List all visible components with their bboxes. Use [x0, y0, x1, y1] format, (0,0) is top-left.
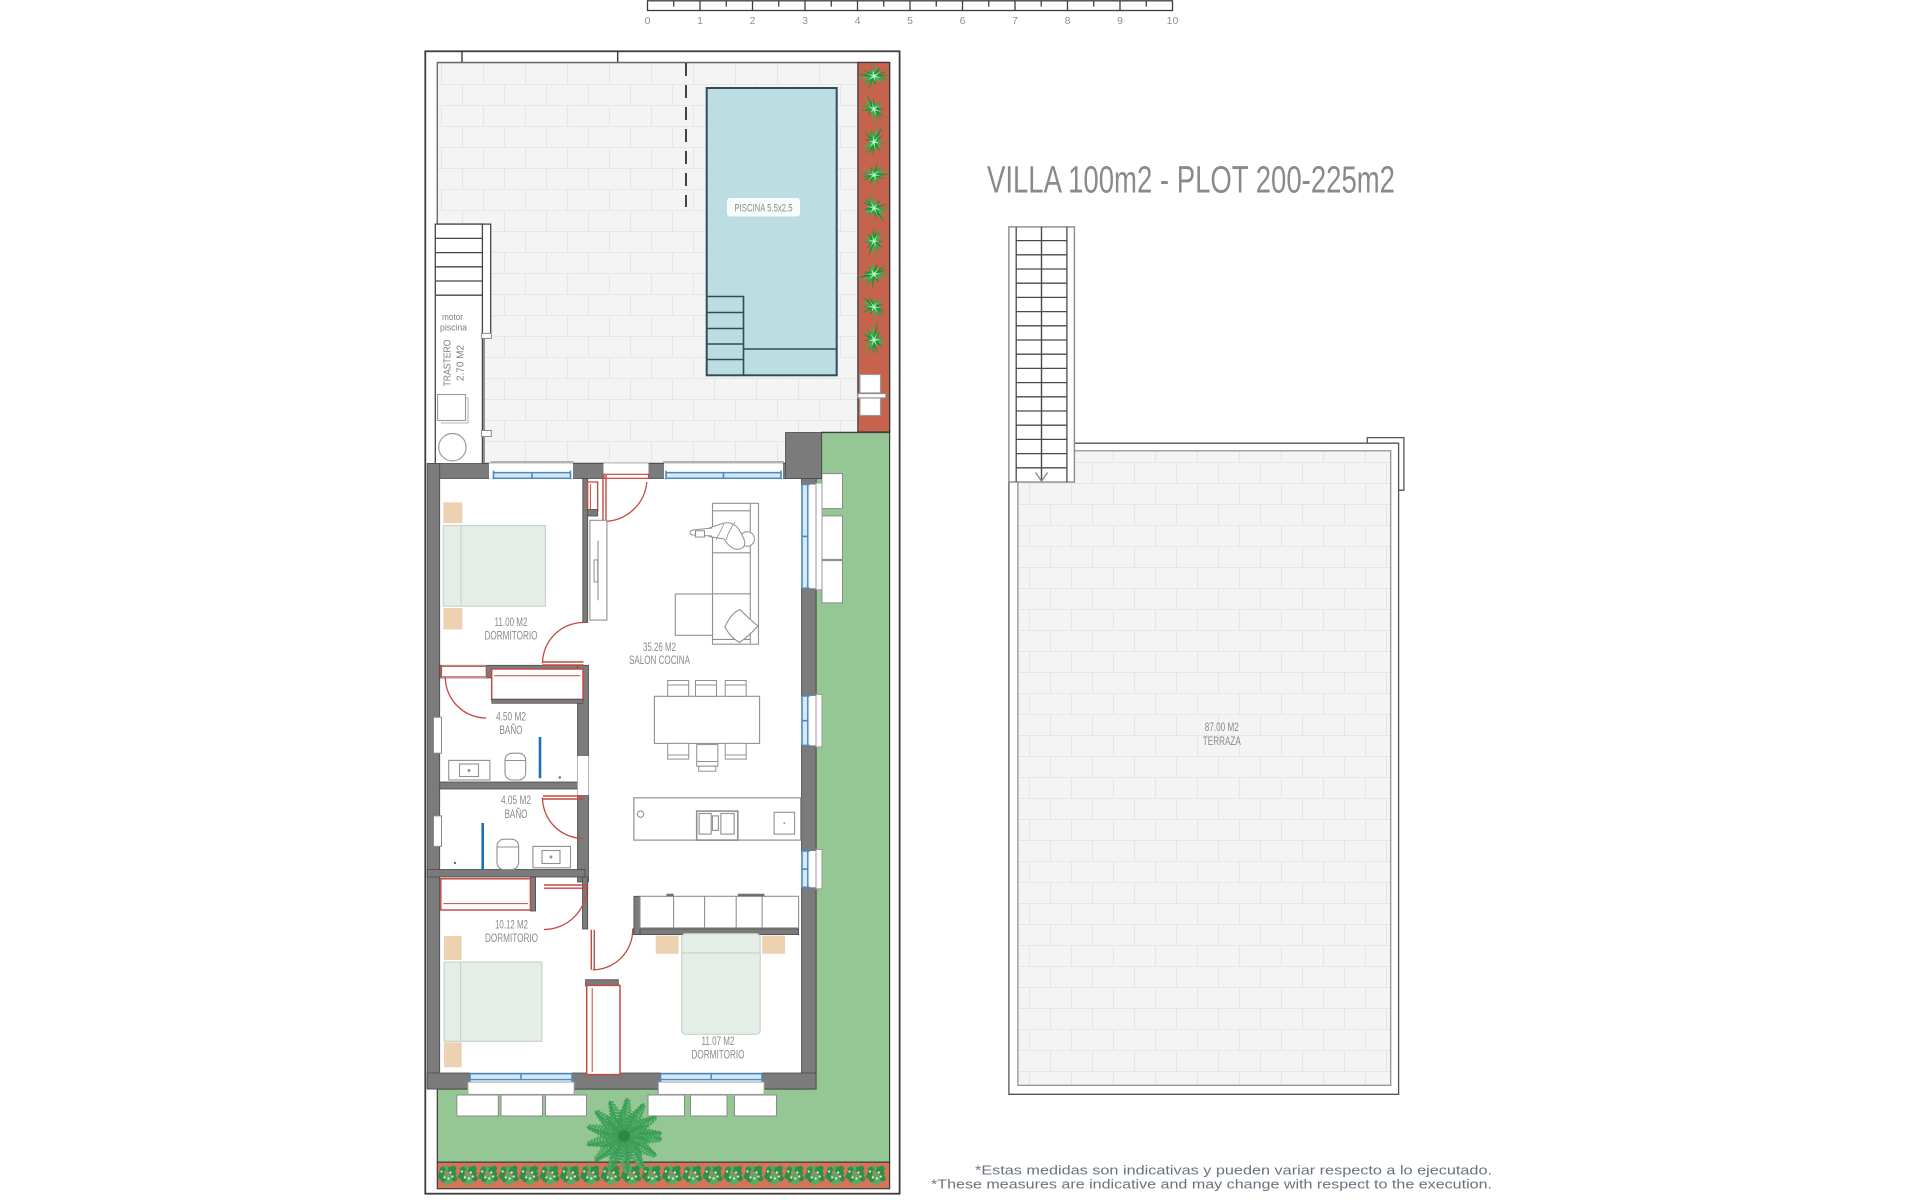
- svg-text:*These measures are indicative: *These measures are indicative and may c…: [931, 1177, 1492, 1192]
- svg-text:4.50 M2: 4.50 M2: [496, 710, 526, 724]
- svg-text:DORMITORIO: DORMITORIO: [485, 931, 538, 945]
- svg-text:35.26 M2: 35.26 M2: [643, 640, 676, 654]
- svg-text:9: 9: [1117, 15, 1123, 27]
- svg-text:motor: motor: [442, 312, 463, 322]
- svg-text:PISCINA 5.5x2.5: PISCINA 5.5x2.5: [735, 203, 793, 215]
- svg-text:4.05 M2: 4.05 M2: [501, 793, 531, 807]
- svg-text:3: 3: [802, 15, 808, 27]
- svg-text:4: 4: [855, 15, 861, 27]
- svg-text:1: 1: [697, 15, 703, 27]
- svg-text:87.00 M2: 87.00 M2: [1205, 720, 1239, 734]
- svg-text:TRASTERO: TRASTERO: [443, 339, 454, 386]
- svg-text:7: 7: [1012, 15, 1018, 27]
- svg-text:11.07 M2: 11.07 M2: [702, 1034, 735, 1048]
- svg-text:11.00 M2: 11.00 M2: [495, 615, 528, 629]
- svg-text:DORMITORIO: DORMITORIO: [485, 629, 538, 643]
- svg-text:piscina: piscina: [440, 323, 467, 333]
- svg-text:10: 10: [1167, 15, 1179, 27]
- svg-text:5: 5: [907, 15, 913, 27]
- svg-text:BAÑO: BAÑO: [505, 807, 528, 821]
- svg-text:SALON COCINA: SALON COCINA: [629, 653, 690, 667]
- svg-text:VILLA 100m2 - PLOT 200-225m2: VILLA 100m2 - PLOT 200-225m2: [987, 159, 1395, 201]
- svg-text:0: 0: [645, 15, 651, 27]
- svg-text:2: 2: [750, 15, 756, 27]
- svg-text:TERRAZA: TERRAZA: [1203, 734, 1241, 748]
- svg-text:10.12 M2: 10.12 M2: [495, 918, 528, 932]
- svg-text:DORMITORIO: DORMITORIO: [692, 1048, 745, 1062]
- svg-text:6: 6: [960, 15, 966, 27]
- svg-text:*Estas medidas son indicativas: *Estas medidas son indicativas y pueden …: [975, 1163, 1492, 1178]
- svg-text:BAÑO: BAÑO: [500, 723, 523, 737]
- svg-text:8: 8: [1065, 15, 1071, 27]
- svg-text:2.70 M2: 2.70 M2: [456, 345, 467, 381]
